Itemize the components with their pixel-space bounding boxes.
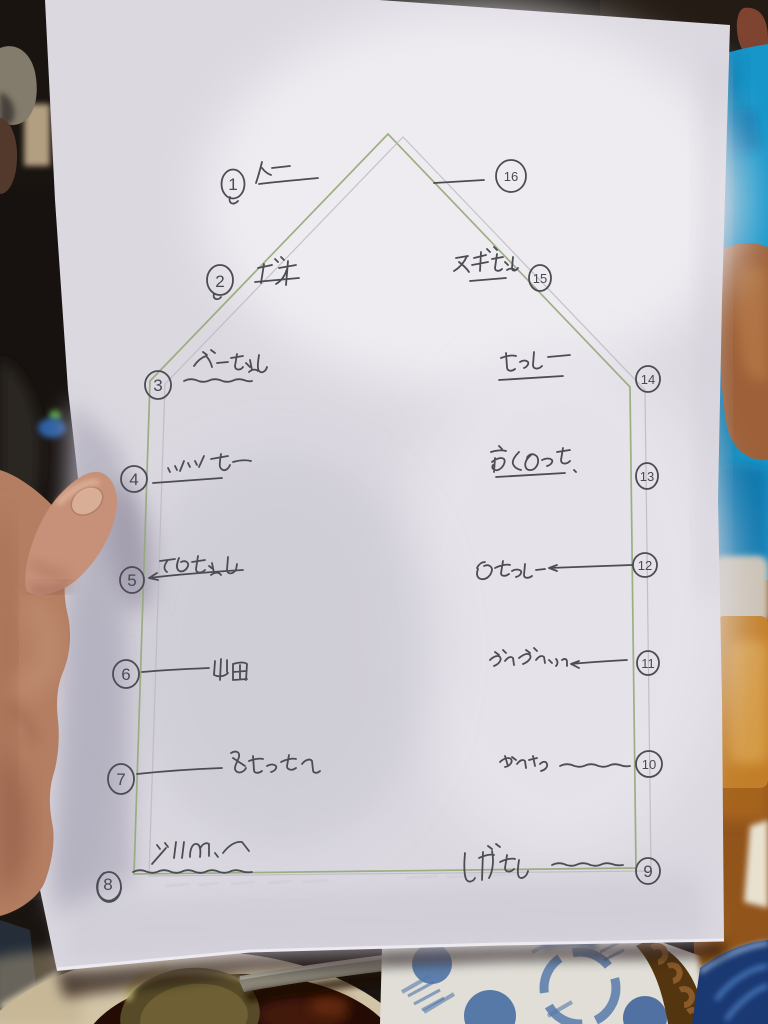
svg-text:7: 7 [116,770,125,789]
svg-text:6: 6 [121,665,130,684]
svg-text:4: 4 [129,470,138,489]
svg-text:10: 10 [642,757,656,772]
svg-text:2: 2 [215,272,224,291]
svg-text:14: 14 [641,372,655,387]
svg-text:8: 8 [103,875,112,894]
svg-text:16: 16 [504,169,518,184]
svg-text:15: 15 [533,271,547,286]
svg-text:11: 11 [641,656,655,671]
svg-text:9: 9 [643,862,652,881]
svg-text:3: 3 [153,376,162,395]
svg-text:5: 5 [127,571,136,590]
svg-text:1: 1 [228,175,237,194]
svg-text:12: 12 [638,558,652,573]
svg-text:13: 13 [640,469,654,484]
